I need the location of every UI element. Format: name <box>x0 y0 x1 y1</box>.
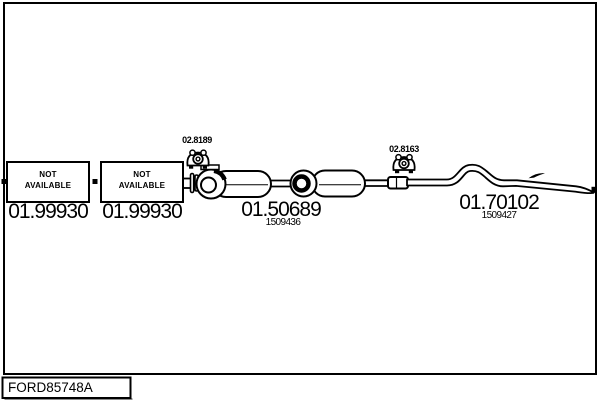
front-gasket-inner <box>201 178 216 193</box>
ref-number-tailpipe: 1509427 <box>459 211 539 221</box>
hanger-code-1: 02.8189 <box>177 136 217 145</box>
sleeve-joint <box>388 177 408 189</box>
connector-square-middle <box>93 179 98 184</box>
direction-arrow-icon <box>529 173 546 178</box>
not-available-label-1: NOT AVAILABLE <box>7 170 89 191</box>
rubber-hanger-icon-2 <box>393 155 414 174</box>
rubber-hanger-icon-1 <box>187 150 208 169</box>
pipe-end-square <box>592 187 598 193</box>
not-available-label-2: NOT AVAILABLE <box>101 170 183 191</box>
hanger-code-2: 02.8163 <box>384 145 424 154</box>
flange-bolt-1 <box>191 174 194 193</box>
connector-square-left <box>2 179 7 184</box>
rear-endcap-donut <box>295 177 309 191</box>
part-number-front-1: 01.99930 <box>2 202 94 221</box>
ref-number-silencer: 1509436 <box>243 218 323 228</box>
part-number-front-2: 01.99930 <box>96 202 188 221</box>
silencer-rear-body <box>312 171 365 197</box>
silencer-outlet-pipe <box>364 180 389 186</box>
exhaust-system-diagram: NOT AVAILABLE NOT AVAILABLE 01.99930 01.… <box>0 0 600 400</box>
tail-pipe-tube <box>407 165 594 193</box>
footer-drawing-code: FORD85748A <box>8 381 128 395</box>
